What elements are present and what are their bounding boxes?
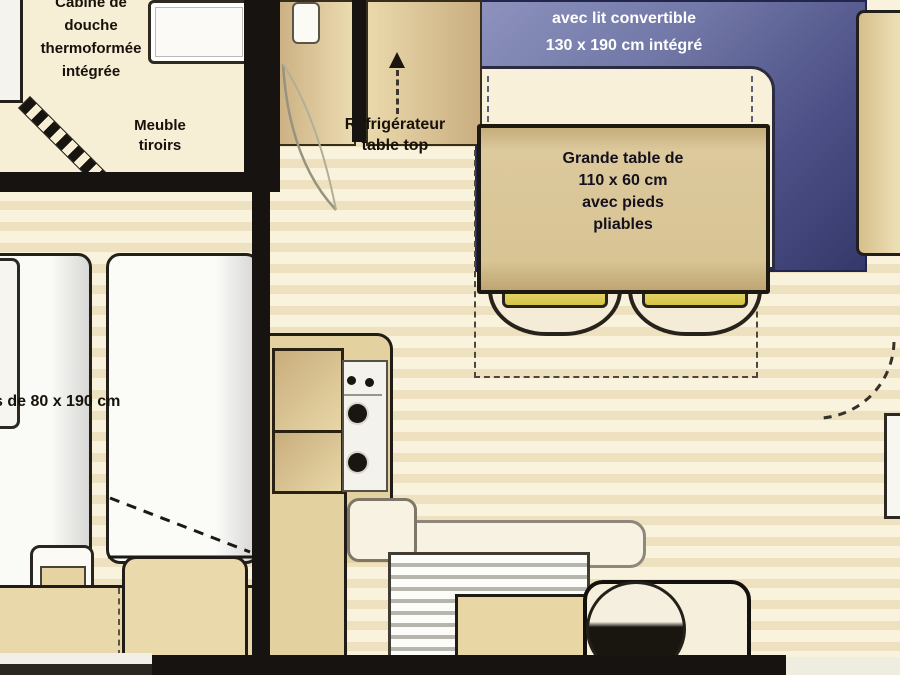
drawer-unit-label-line1: Meuble — [100, 116, 220, 136]
wall-kitchen-top-divider — [352, 0, 366, 142]
bathroom-label-line4: intégrée — [16, 60, 166, 83]
bathroom-label-line3: thermoformée — [16, 37, 166, 60]
stove-burner-1 — [348, 404, 367, 423]
stove-knob-2 — [365, 378, 374, 387]
bottom-right-step — [786, 657, 900, 675]
table-label: Grande table de 110 x 60 cm avec pieds p… — [485, 148, 761, 236]
wall-bathroom-right — [244, 0, 280, 192]
drawer-unit-label-line2: tiroirs — [100, 136, 220, 156]
stove-burner-2 — [348, 453, 367, 472]
sofa-label: avec lit convertible 130 x 190 cm intégr… — [478, 5, 770, 59]
wall-bathroom-bottom — [0, 172, 262, 192]
bathroom-label-line2: douche — [16, 14, 166, 37]
entry-door-swing-arc — [822, 342, 894, 418]
fridge-label: Réfrigérateur table top — [312, 114, 478, 156]
table-label-line4: pliables — [485, 214, 761, 236]
fridge-label-line1: Réfrigérateur — [312, 114, 478, 135]
wall-bedroom-right — [252, 192, 270, 658]
beds-size-label: s de 80 x 190 cm — [0, 392, 194, 412]
bottom-left-shadow — [0, 664, 152, 675]
bed-fold-dashed-line — [110, 498, 250, 552]
sofa-label-line1: avec lit convertible — [478, 5, 770, 32]
table-label-line3: avec pieds — [485, 192, 761, 214]
drawer-unit-label: Meuble tiroirs — [100, 116, 220, 156]
stove-knob-1 — [347, 376, 356, 385]
bottom-left-step — [0, 653, 152, 664]
table-label-line1: Grande table de — [485, 148, 761, 170]
bathroom-label-line1: Cabine de — [16, 0, 166, 14]
sofa-label-line2: 130 x 190 cm intégré — [478, 32, 770, 59]
fridge-label-line2: table top — [312, 135, 478, 156]
stove-divider-line — [344, 394, 382, 396]
wall-bottom — [150, 655, 786, 675]
table-label-line2: 110 x 60 cm — [485, 170, 761, 192]
bed-foot-chest — [122, 556, 248, 661]
bathroom-label: Cabine de douche thermoformée intégrée — [16, 0, 166, 83]
floor-plan: Cabine de douche thermoformée intégrée M… — [0, 0, 900, 675]
